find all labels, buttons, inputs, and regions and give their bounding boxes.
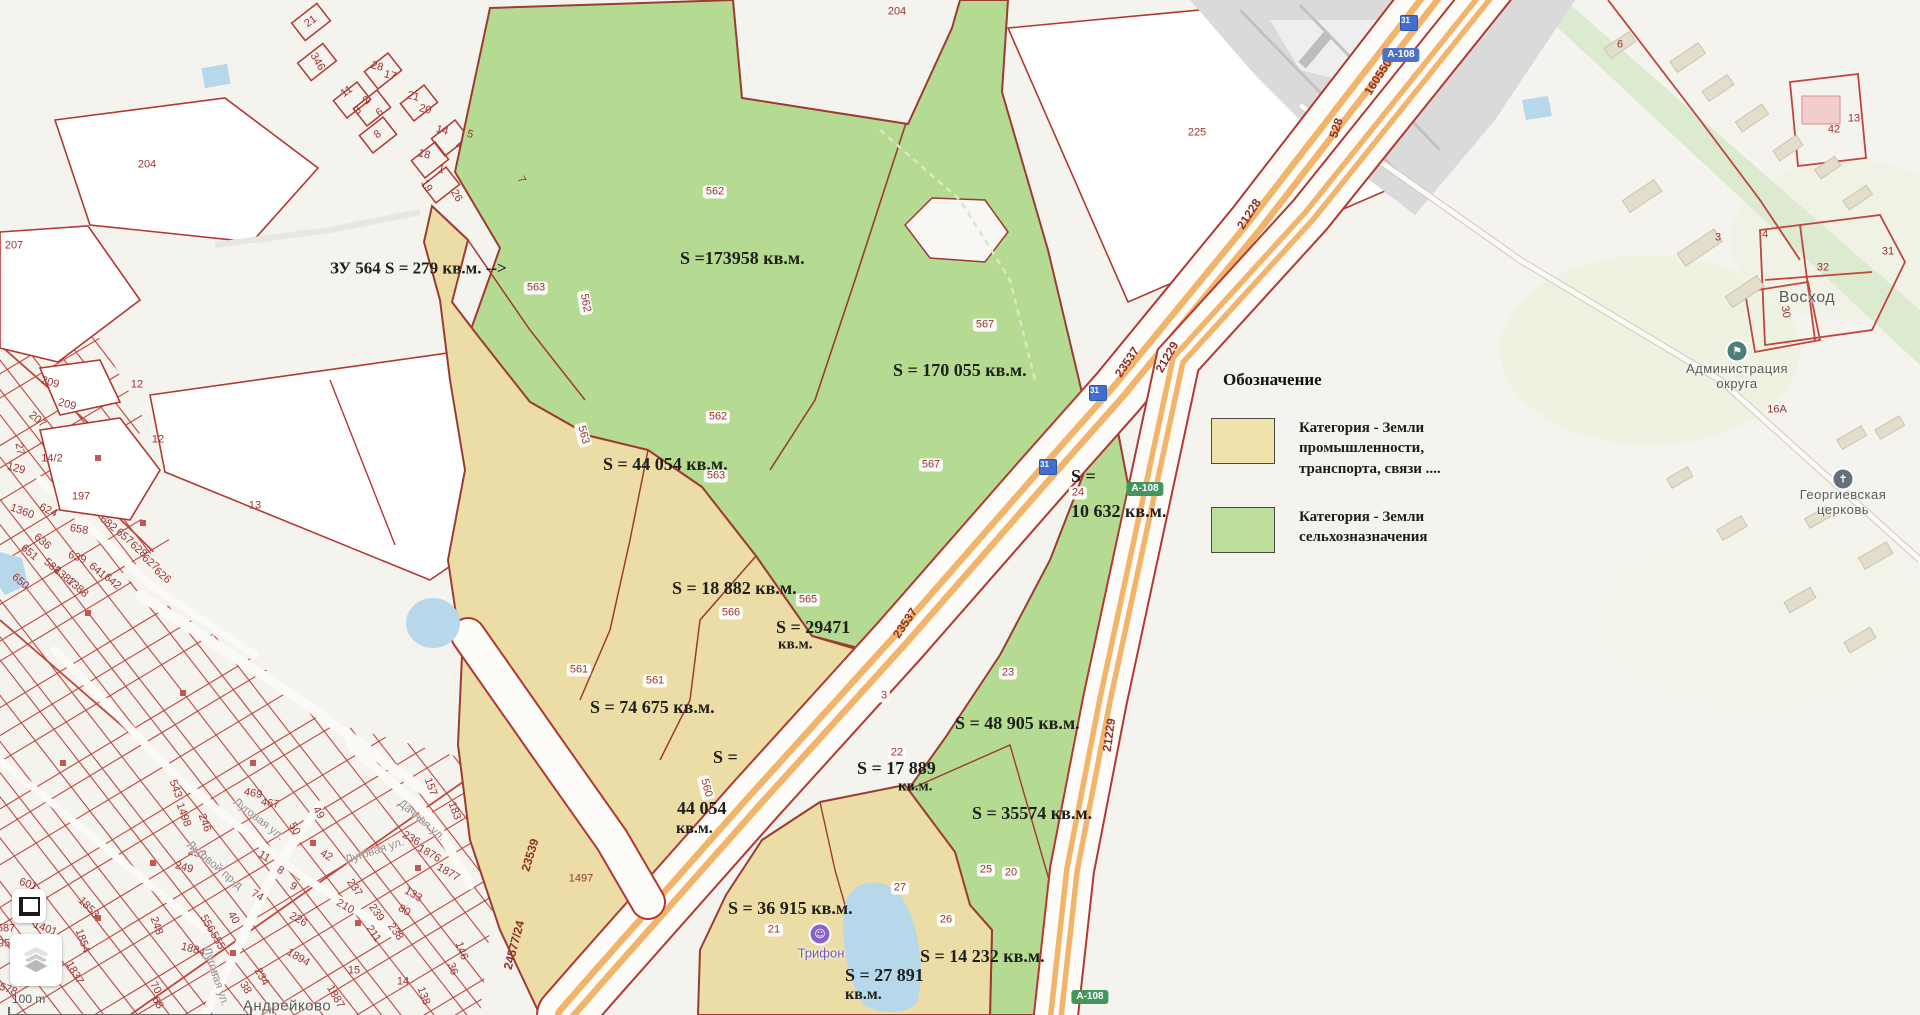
parcel-number: 26 xyxy=(937,914,955,927)
parcel-number: 561 xyxy=(567,664,591,677)
parcel-number: 197 xyxy=(72,492,90,503)
parcel-number: 21 xyxy=(303,14,319,30)
parcel-number: 346 xyxy=(308,51,327,72)
parcel-number: 563 xyxy=(704,470,728,483)
parcel-number: 642 xyxy=(101,572,122,592)
route-shield: 31 xyxy=(1400,15,1418,31)
legend: Обозначение Категория - Земли промышленн… xyxy=(1211,370,1541,581)
area-annotation: S = 17 889 xyxy=(857,759,936,777)
area-annotation: S = 14 232 кв.м. xyxy=(920,947,1045,965)
map-canvas[interactable]: ЗУ 564 S = 279 кв.м. -->S =173958 кв.м.S… xyxy=(0,0,1920,1015)
parcel-number: 15 xyxy=(348,966,360,977)
layers-icon xyxy=(21,945,51,975)
parcel-number: 13 xyxy=(249,501,261,512)
parcel-number: 14 xyxy=(397,977,409,988)
parcel-number: 22 xyxy=(888,747,906,760)
parcel-number: 95 xyxy=(0,939,10,950)
parcel-number: 42 xyxy=(1828,125,1840,136)
parcel-number: 7 xyxy=(515,175,528,186)
parcel-number: 1 xyxy=(437,164,446,176)
parcel-number: 50 xyxy=(286,821,302,837)
measure-icon xyxy=(19,897,40,916)
parcel-number: 14/2 xyxy=(41,454,62,465)
parcel-number: 21 xyxy=(406,90,421,104)
parcel-number: 234 xyxy=(252,966,271,987)
parcel-number: 20 xyxy=(418,103,433,117)
legend-item-industrial: Категория - Земли промышленности, трансп… xyxy=(1211,418,1541,479)
parcel-number: 587 xyxy=(0,924,15,935)
parcel-number: 237 xyxy=(344,877,364,898)
street-name: Луговая ул. xyxy=(344,837,406,867)
area-annotation: 44 054 xyxy=(677,799,727,817)
parcel-number: 12 xyxy=(152,435,164,446)
parcel-number: 1854 xyxy=(73,928,92,955)
place-name: Андрейково xyxy=(243,997,331,1014)
parcel-number: 25 xyxy=(977,864,995,877)
area-annotation: S =173958 кв.м. xyxy=(680,249,805,267)
legend-swatch-agricultural xyxy=(1211,507,1275,553)
area-annotation: S = 74 675 кв.м. xyxy=(590,698,715,716)
parcel-number: 1894 xyxy=(285,947,312,969)
area-annotation: S = 27 891 xyxy=(845,966,924,984)
parcel-number: 1360 xyxy=(9,503,36,522)
area-annotation: S = 29471 xyxy=(776,618,850,636)
parcel-number: 467 xyxy=(260,797,280,811)
area-annotation: S = 18 882 кв.м. xyxy=(672,579,797,597)
parcel-number: 563 xyxy=(574,422,593,449)
parcel-number: 1876 xyxy=(416,843,443,865)
area-annotation: кв.м. xyxy=(845,987,882,1003)
parcel-number: 157 xyxy=(422,776,439,797)
road-number: 23539 xyxy=(519,837,540,872)
area-annotation: ЗУ 564 S = 279 кв.м. --> xyxy=(330,260,507,277)
parcel-number: 225 xyxy=(1188,128,1206,139)
area-annotation: S = 35574 кв.м. xyxy=(972,804,1092,822)
parcel-number: 5 xyxy=(466,129,475,141)
parcel-number: 204 xyxy=(888,7,906,18)
parcel-number: 204 xyxy=(138,160,156,171)
parcel-number: 6 xyxy=(374,107,385,120)
parcel-number: 211 xyxy=(363,924,382,945)
place-name: Администрация округа xyxy=(1686,362,1788,392)
parcel-number: 23 xyxy=(999,667,1017,680)
parcel-number: 40 xyxy=(225,910,241,926)
parcel-number: 658 xyxy=(69,523,89,537)
parcel-number: 1837 xyxy=(63,960,85,987)
parcel-number: 11 xyxy=(339,84,355,100)
parcel-number: 562 xyxy=(703,186,727,199)
parcel-number: 1497 xyxy=(569,874,593,885)
area-annotation: 10 632 кв.м. xyxy=(1071,502,1166,520)
legend-item-agricultural: Категория - Земли сельхозназначения xyxy=(1211,507,1541,553)
road-number: 528 xyxy=(1327,117,1345,140)
parcel-number: 209 xyxy=(40,375,61,390)
parcel-number: 14 xyxy=(435,124,450,138)
parcel-number: 563 xyxy=(524,282,548,295)
parcel-number: 624 xyxy=(37,502,58,520)
parcel-number: 6 xyxy=(1617,40,1623,51)
parcel-number: 650 xyxy=(9,572,30,592)
administration-poi-icon[interactable]: ⚑ xyxy=(1728,342,1747,361)
parcel-number: 16А xyxy=(1767,405,1787,416)
area-annotation: S = 170 055 кв.м. xyxy=(893,361,1027,379)
parcel-number: 28 xyxy=(370,60,385,74)
parcel-number: 469 xyxy=(243,787,263,801)
parcel-number: 239 xyxy=(366,902,386,923)
trifon-poi-icon[interactable]: ☺ xyxy=(811,925,830,944)
area-annotation: кв.м. xyxy=(676,821,713,837)
parcel-number: 27 xyxy=(13,442,26,456)
route-badge-a108: А-108 xyxy=(1126,482,1163,496)
parcel-number: 18 xyxy=(417,148,432,162)
road-number: 23537 xyxy=(891,606,920,640)
parcel-number: 3 xyxy=(1715,233,1721,244)
place-name: Восход xyxy=(1779,289,1835,307)
poi-label: Трифон xyxy=(798,946,845,961)
parcel-number: 26 xyxy=(448,188,464,204)
parcel-number: 1853 xyxy=(75,895,100,920)
parcel-number: 567 xyxy=(973,319,997,332)
parcel-number: 183 xyxy=(446,800,463,821)
parcel-number: 133 xyxy=(402,886,423,905)
parcel-number: 4 xyxy=(1762,230,1768,241)
parcel-number: 21 xyxy=(765,924,783,937)
scale-bar: 100 m xyxy=(8,992,252,1015)
parcel-number: 566 xyxy=(719,607,743,620)
parcel-number: 80 xyxy=(396,903,412,919)
parcel-number: 543 xyxy=(167,778,184,799)
parcel-number: 248 xyxy=(148,915,165,936)
labels-layer: ЗУ 564 S = 279 кв.м. -->S =173958 кв.м.S… xyxy=(0,0,1920,1015)
parcel-number: 226 xyxy=(287,911,308,930)
measure-tool-button[interactable] xyxy=(12,889,46,923)
parcel-number: 2 xyxy=(361,95,372,108)
parcel-number: 207 xyxy=(26,410,47,430)
road-number: 21229 xyxy=(1101,718,1118,753)
area-annotation: кв.м. xyxy=(898,780,932,795)
legend-label-agricultural: Категория - Земли сельхозназначения xyxy=(1299,507,1428,548)
layers-button[interactable] xyxy=(10,934,62,986)
parcel-number: 238 xyxy=(385,921,405,942)
parcel-number: 4 xyxy=(455,140,464,152)
parcel-number: 8 xyxy=(275,865,286,878)
parcel-number: 3 xyxy=(878,690,890,703)
legend-swatch-industrial xyxy=(1211,418,1275,464)
parcel-number: 639 xyxy=(66,550,87,567)
place-name: Георгиевская церковь xyxy=(1800,488,1887,518)
road-number: 21228 xyxy=(1235,197,1263,232)
parcel-number: 19 xyxy=(418,178,434,194)
parcel-number: 36 xyxy=(445,961,460,976)
parcel-number: 207 xyxy=(5,241,23,252)
parcel-number: 626 xyxy=(151,566,172,586)
legend-title: Обозначение xyxy=(1223,370,1541,390)
route-badge-a108: А-108 xyxy=(1382,48,1419,62)
parcel-number: 12 xyxy=(131,380,143,391)
area-annotation: S = 48 905 кв.м. xyxy=(955,714,1080,732)
parcel-number: 20 xyxy=(1002,867,1020,880)
parcel-number: 138 xyxy=(415,985,432,1006)
parcel-number: 209 xyxy=(57,397,78,412)
parcel-number: 74 xyxy=(249,888,265,904)
parcel-number: 24 xyxy=(1069,487,1087,500)
parcel-number: 3 xyxy=(352,105,363,118)
area-annotation: S = 36 915 кв.м. xyxy=(728,899,853,917)
parcel-number: 31 xyxy=(1882,247,1894,258)
parcel-number: 9 xyxy=(288,881,299,894)
parcel-number: 567 xyxy=(919,459,943,472)
route-shield: 31 xyxy=(1039,459,1057,475)
parcel-number: 562 xyxy=(706,411,730,424)
parcel-number: 146 xyxy=(453,940,470,961)
road-number: 23537 xyxy=(1113,345,1142,379)
parcel-number: 210 xyxy=(334,898,355,917)
parcel-number: 565 xyxy=(796,594,820,607)
parcel-number: 32 xyxy=(1817,263,1829,274)
parcel-number: 561 xyxy=(643,675,667,688)
scale-label: 100 m xyxy=(12,992,252,1006)
route-badge-a108: А-108 xyxy=(1071,990,1108,1004)
route-shield: 31 xyxy=(1089,385,1107,401)
parcel-number: 651 xyxy=(18,543,39,563)
parcel-number: 1498 xyxy=(174,802,193,829)
parcel-number: 8 xyxy=(372,129,383,142)
parcel-number: 129 xyxy=(6,461,27,476)
parcel-number: 13 xyxy=(1848,114,1860,125)
parcel-number: 27 xyxy=(891,882,909,895)
parcel-number: 1388 xyxy=(64,576,90,600)
parcel-number: 49 xyxy=(310,805,326,821)
scale-line xyxy=(8,1007,252,1015)
parcel-number: 1877 xyxy=(435,862,462,884)
parcel-number: 17 xyxy=(383,69,398,83)
parcel-number: 246 xyxy=(196,812,213,833)
parcel-number: 42 xyxy=(318,848,334,864)
road-number: 160550 xyxy=(1362,57,1394,97)
parcel-number: 562 xyxy=(576,290,593,316)
legend-label-industrial: Категория - Земли промышленности, трансп… xyxy=(1299,418,1441,479)
church-poi-icon[interactable]: ✝ xyxy=(1834,470,1853,489)
area-annotation: S = xyxy=(713,748,738,766)
area-annotation: кв.м. xyxy=(778,638,812,653)
area-annotation: S = xyxy=(1071,467,1096,485)
road-number: 24577/24 xyxy=(502,919,527,970)
parcel-number: 11 xyxy=(256,849,271,864)
road-number: 21229 xyxy=(1153,340,1180,375)
parcel-number: 249 xyxy=(174,860,195,875)
